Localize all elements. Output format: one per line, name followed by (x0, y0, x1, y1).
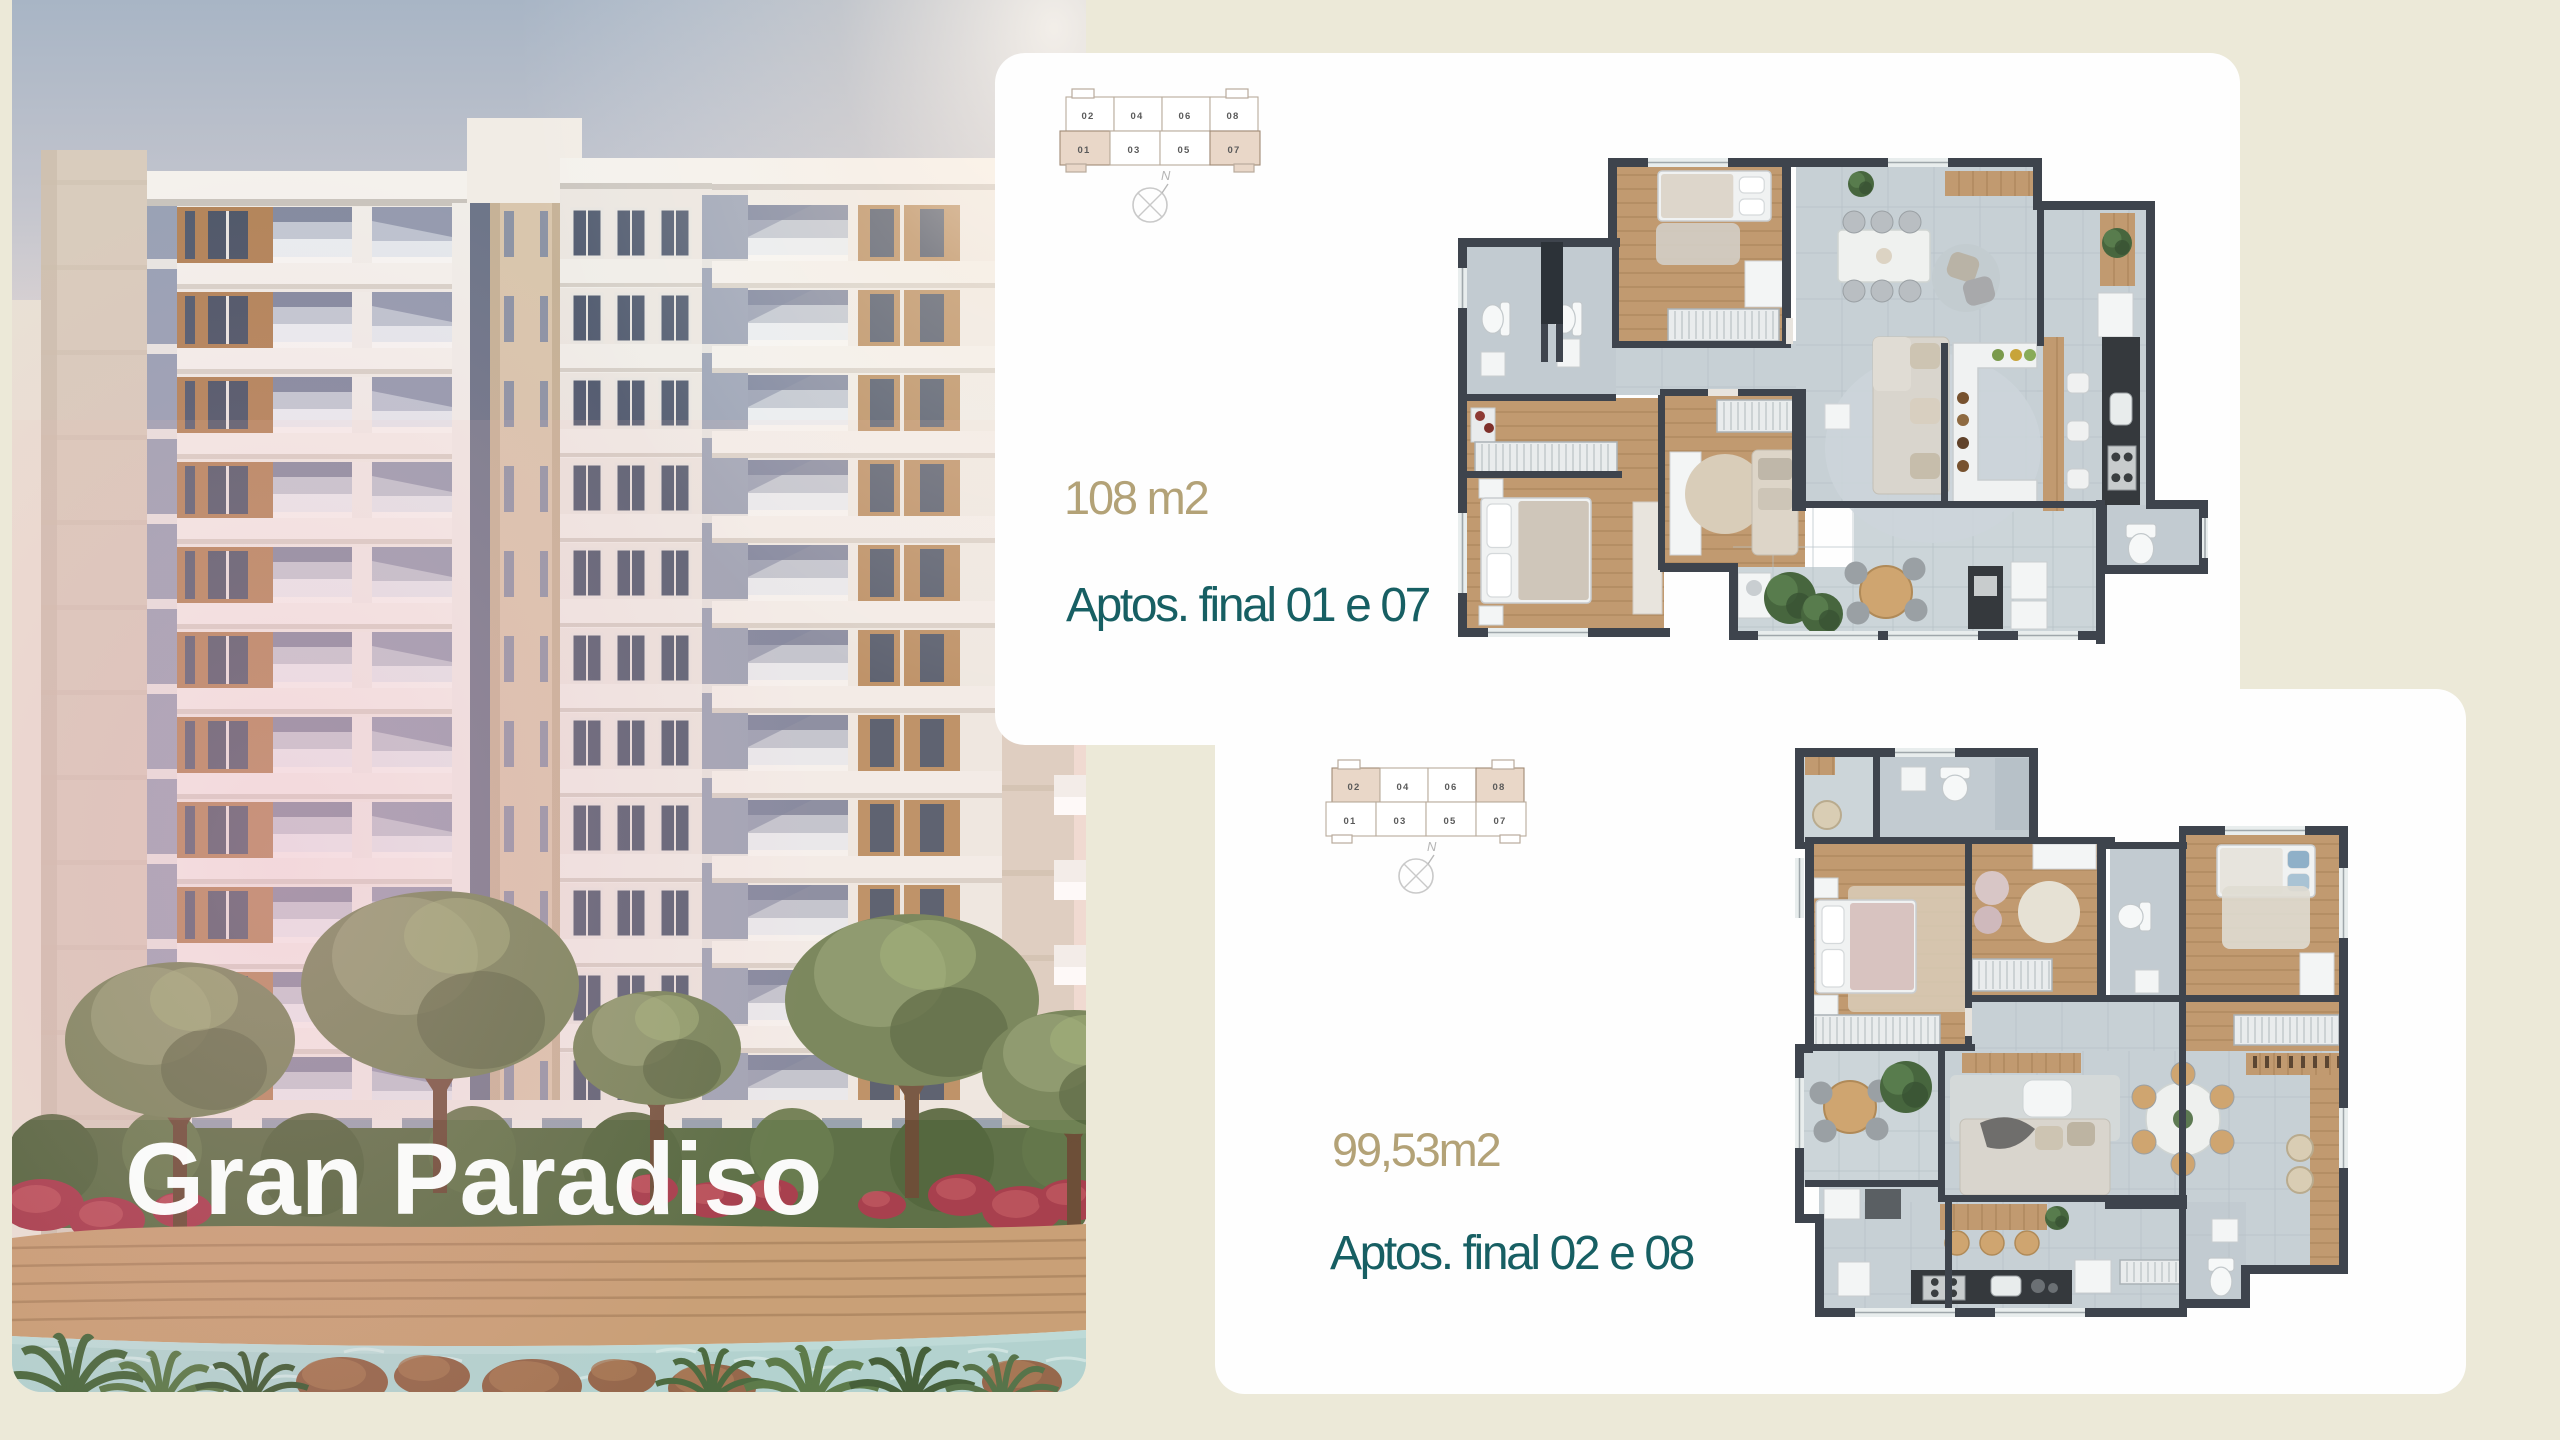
svg-text:08: 08 (1227, 111, 1240, 122)
svg-text:08: 08 (1493, 782, 1506, 793)
svg-text:04: 04 (1397, 782, 1410, 793)
svg-text:05: 05 (1178, 145, 1191, 156)
svg-text:Gran Paradiso: Gran Paradiso (125, 1122, 822, 1236)
svg-text:06: 06 (1179, 111, 1192, 122)
svg-text:02: 02 (1348, 782, 1361, 793)
svg-text:07: 07 (1494, 816, 1507, 827)
svg-text:05: 05 (1444, 816, 1457, 827)
svg-text:03: 03 (1128, 145, 1141, 156)
svg-text:01: 01 (1078, 145, 1091, 156)
svg-text:07: 07 (1228, 145, 1241, 156)
svg-text:03: 03 (1394, 816, 1407, 827)
svg-text:N: N (1427, 839, 1437, 854)
svg-text:04: 04 (1131, 111, 1144, 122)
svg-text:01: 01 (1344, 816, 1357, 827)
svg-text:06: 06 (1445, 782, 1458, 793)
svg-text:02: 02 (1082, 111, 1095, 122)
svg-text:N: N (1161, 168, 1171, 183)
